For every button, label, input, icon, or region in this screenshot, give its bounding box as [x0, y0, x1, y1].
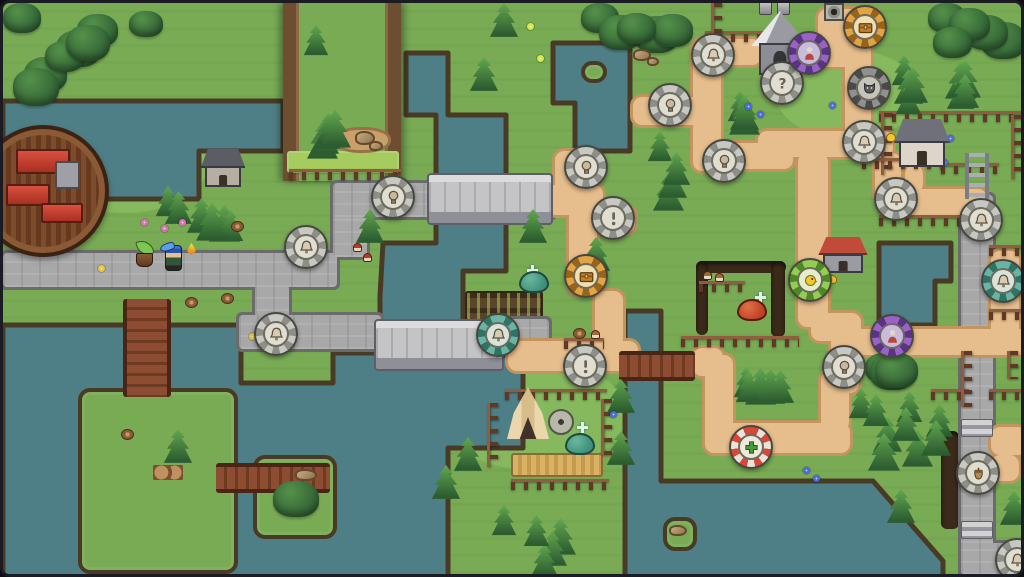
flower — [803, 467, 810, 474]
flower — [141, 219, 148, 226]
bell-icon — [293, 234, 319, 260]
fence — [711, 3, 722, 37]
tree-stump — [573, 328, 586, 339]
stairs — [961, 521, 993, 539]
water-forest-pond — [553, 43, 630, 151]
svg-text:?: ? — [778, 76, 786, 91]
mushroom — [353, 243, 362, 252]
bulb-icon — [573, 154, 599, 180]
rock — [669, 525, 687, 536]
bush — [66, 25, 110, 61]
teal-slime[interactable] — [519, 271, 549, 293]
tree-stump — [185, 297, 198, 308]
tent-door — [520, 417, 537, 439]
map-marker-chest[interactable] — [843, 5, 887, 49]
bush — [617, 13, 656, 44]
figure-icon — [796, 40, 822, 66]
question-icon: ? — [769, 70, 795, 96]
house-roof — [818, 237, 867, 255]
map-marker-exclamation[interactable] — [591, 196, 635, 240]
map-marker-bell[interactable] — [959, 198, 1003, 242]
wheat-field — [511, 453, 603, 477]
tree-stump — [231, 221, 244, 232]
stairs — [961, 419, 993, 437]
map-marker-bell[interactable] — [691, 33, 735, 77]
wood-h-bridge — [619, 351, 695, 381]
millstone — [548, 409, 574, 435]
mushroom — [363, 253, 372, 262]
bulb-icon — [831, 354, 857, 380]
bulb-icon — [380, 184, 406, 210]
bush — [652, 14, 693, 47]
mushroom — [715, 273, 724, 282]
map-marker-bell[interactable] — [842, 120, 886, 164]
bush — [273, 481, 319, 517]
fence — [505, 389, 607, 400]
flower — [813, 475, 820, 482]
grass-island — [581, 61, 607, 83]
house-farm-house — [897, 119, 947, 167]
log-pile — [153, 465, 183, 480]
map-marker-bulb[interactable] — [648, 83, 692, 127]
flower — [610, 411, 617, 418]
bulb-icon — [657, 92, 683, 118]
bush — [3, 3, 41, 33]
grass-island — [78, 388, 238, 574]
flower — [745, 103, 752, 110]
map-marker-cross[interactable] — [729, 425, 773, 469]
fence — [681, 336, 799, 347]
map-marker-figure[interactable] — [870, 314, 914, 358]
fence — [487, 403, 498, 467]
exclamation-icon — [600, 205, 626, 231]
world-map: ? — [3, 3, 1021, 574]
cat-icon — [856, 75, 882, 101]
house-door — [219, 175, 227, 185]
map-marker-bulb[interactable] — [371, 175, 415, 219]
map-marker-bell[interactable] — [874, 177, 918, 221]
fence — [961, 351, 972, 407]
tree-stump — [221, 293, 234, 304]
dirt-path — [991, 427, 1024, 455]
flower — [829, 102, 836, 109]
map-marker-bulb[interactable] — [564, 145, 608, 189]
wood-v-bridge — [123, 299, 171, 397]
well — [824, 3, 844, 21]
sparkle-icon — [577, 422, 588, 433]
bell-icon — [1004, 547, 1024, 573]
teal-slime[interactable] — [565, 433, 595, 455]
fence — [699, 281, 745, 292]
fence — [989, 245, 1024, 256]
flower — [161, 225, 168, 232]
fence — [989, 389, 1024, 400]
flower — [98, 265, 105, 272]
exclamation-icon — [572, 353, 598, 379]
red-slime[interactable] — [737, 299, 767, 321]
rock — [295, 469, 317, 481]
flower — [537, 55, 544, 62]
bush — [13, 68, 59, 106]
map-marker-bulb[interactable] — [702, 139, 746, 183]
bush — [129, 11, 163, 37]
chick-icon — [797, 267, 823, 293]
flower — [179, 219, 186, 226]
mushroom — [591, 330, 600, 339]
bush — [933, 27, 972, 58]
bell-icon — [968, 207, 994, 233]
fence — [989, 309, 1024, 320]
acorn-icon — [965, 460, 991, 486]
town-tower — [55, 161, 80, 188]
map-marker-acorn[interactable] — [956, 451, 1000, 495]
water-east-pond — [879, 243, 951, 325]
fence — [1007, 351, 1018, 379]
house-walls — [899, 141, 945, 167]
rock — [369, 141, 383, 151]
bulb-icon — [711, 148, 737, 174]
bush — [875, 353, 918, 388]
bell-icon — [883, 186, 909, 212]
chest-icon — [573, 263, 599, 289]
fence — [511, 479, 609, 490]
mushroom — [703, 271, 712, 280]
bell-icon — [700, 42, 726, 68]
house-walls — [205, 166, 242, 187]
town-roof — [41, 203, 83, 223]
cross-icon — [738, 434, 764, 460]
map-marker-cat[interactable] — [847, 66, 891, 110]
map-marker-chest[interactable] — [564, 254, 608, 298]
map-marker-bell[interactable] — [284, 225, 328, 269]
map-marker-bell[interactable] — [981, 259, 1024, 303]
house-roof — [894, 119, 950, 143]
rock — [647, 57, 659, 66]
sprout-companion[interactable] — [135, 243, 152, 267]
bell-icon — [990, 268, 1016, 294]
fence — [1011, 115, 1022, 179]
dirt-trench — [771, 261, 785, 337]
player-character[interactable] — [165, 245, 182, 271]
bell-icon — [263, 321, 289, 347]
map-marker-bulb[interactable] — [822, 345, 866, 389]
chest-icon — [852, 14, 878, 40]
house-door — [839, 261, 848, 271]
flower — [757, 111, 764, 118]
map-marker-exclamation[interactable] — [563, 344, 607, 388]
ladder — [965, 153, 989, 199]
map-marker-chick[interactable] — [788, 258, 832, 302]
tree-stump — [121, 429, 134, 440]
bell-icon — [851, 129, 877, 155]
flower — [527, 23, 534, 30]
game-viewport: ? — [0, 0, 1024, 577]
house-door — [917, 151, 927, 165]
map-marker-bell[interactable] — [254, 312, 298, 356]
map-marker-bell[interactable] — [476, 313, 520, 357]
map-marker-figure[interactable] — [787, 31, 831, 75]
figure-icon — [879, 323, 905, 349]
house-roof — [201, 149, 246, 168]
chick — [886, 133, 896, 142]
house-stone-house — [203, 149, 243, 187]
bell-icon — [485, 322, 511, 348]
